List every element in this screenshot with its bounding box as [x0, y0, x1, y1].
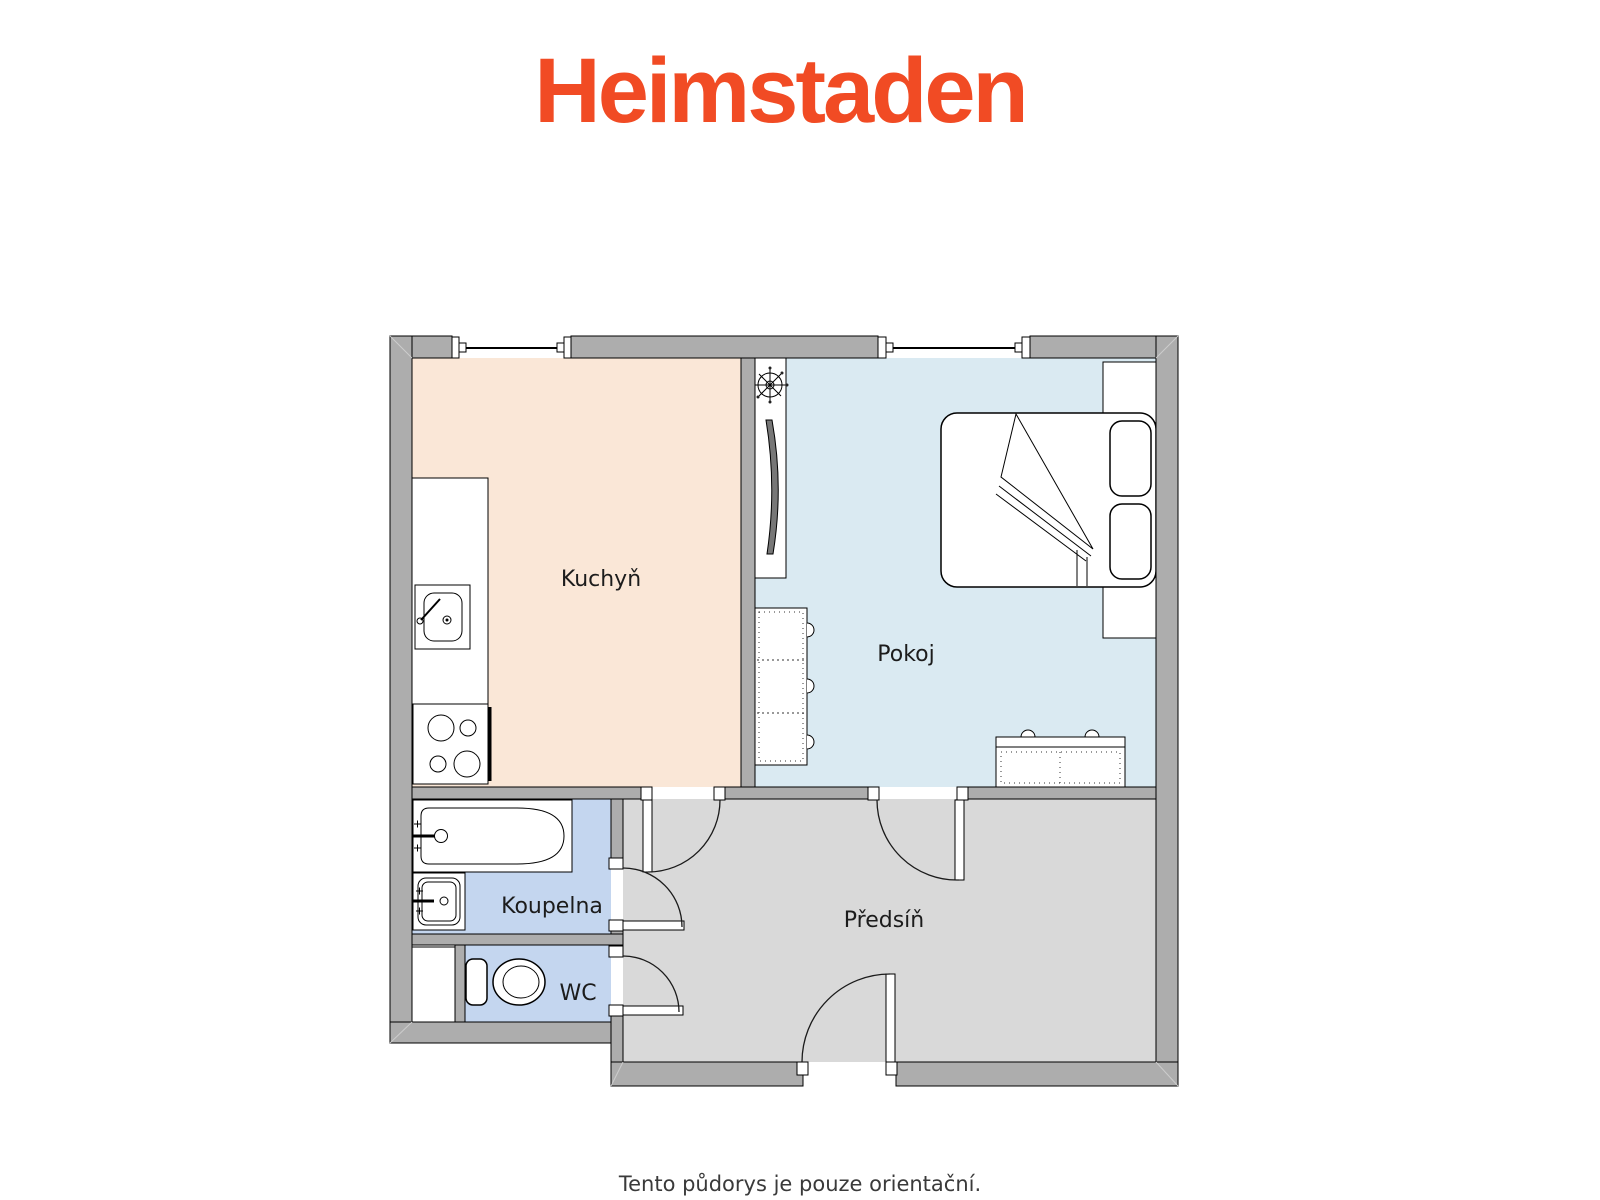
- wall-segment: [611, 1016, 623, 1062]
- stove-icon: [413, 704, 490, 784]
- wall-segment: [1156, 336, 1178, 1086]
- kitchen-sink-icon: [415, 585, 470, 649]
- label-wc: WC: [559, 981, 596, 1006]
- wall-segment: [965, 787, 1156, 799]
- wall-segment: [720, 787, 873, 799]
- heimstaden-logo: Heimstaden: [534, 40, 1026, 142]
- wall-segment: [611, 799, 623, 858]
- wall-segment: [741, 358, 755, 787]
- door-leaf: [886, 974, 895, 1062]
- toilet-icon: [466, 959, 545, 1005]
- door-leaf: [623, 1006, 683, 1015]
- floor-plan-page: Heimstaden: [0, 0, 1600, 1200]
- door-leaf: [623, 921, 684, 930]
- wall-segment: [412, 787, 643, 799]
- wardrobe-icon: [755, 608, 814, 765]
- installation-shaft: [412, 947, 455, 1022]
- bed-pillow: [1110, 504, 1151, 579]
- door-leaf: [955, 800, 964, 880]
- washbasin-icon: [411, 873, 465, 930]
- label-koupelna: Koupelna: [501, 894, 603, 919]
- wall-segment: [611, 1062, 803, 1086]
- wall-segment: [412, 934, 623, 945]
- door-leaf: [643, 800, 652, 872]
- dresser-icon: [996, 730, 1125, 788]
- label-kuchyn: Kuchyň: [561, 567, 641, 592]
- window-pokoj-icon: [878, 337, 1030, 358]
- label-predsin: Předsíň: [844, 908, 924, 933]
- footer-note: Tento půdorys je pouze orientační.: [618, 1172, 981, 1196]
- bed-pillow: [1110, 421, 1151, 496]
- wall-segment: [390, 336, 412, 1043]
- wall-segment: [390, 1022, 617, 1043]
- label-pokoj: Pokoj: [877, 642, 934, 667]
- wall-segment: [571, 336, 878, 358]
- window-kuchyn-icon: [452, 337, 571, 358]
- wall-segment: [896, 1062, 1178, 1086]
- wall-segment: [455, 945, 465, 1022]
- bathtub-icon: [411, 800, 572, 872]
